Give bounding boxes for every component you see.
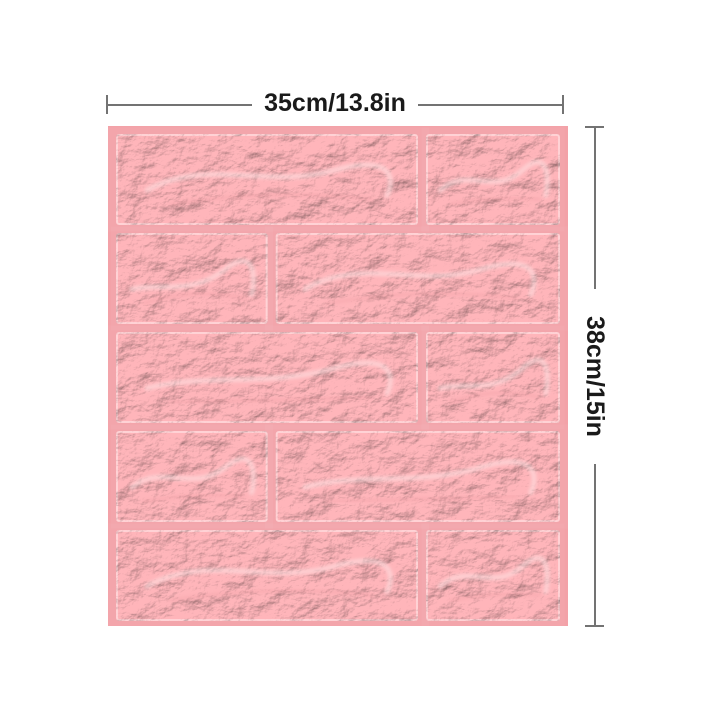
height-dimension-label-box: 38cm/15in xyxy=(585,289,604,464)
brick-panel xyxy=(108,126,568,626)
dimension-line-bottom-segment xyxy=(594,464,596,625)
brick xyxy=(117,135,417,224)
height-dimension: 38cm/15in xyxy=(585,126,604,627)
dimension-line-left-segment xyxy=(108,104,252,106)
product-image: 35cm/13.8in 38cm/15in xyxy=(0,0,720,720)
brick xyxy=(427,333,559,422)
brick-grid xyxy=(117,135,559,620)
dimension-line-right-segment xyxy=(418,104,562,106)
dimension-tick-bottom xyxy=(585,625,604,627)
dimension-tick-right xyxy=(562,95,564,114)
height-dimension-label: 38cm/15in xyxy=(582,316,607,437)
width-dimension: 35cm/13.8in xyxy=(106,95,564,114)
dimension-line-top-segment xyxy=(594,128,596,289)
brick xyxy=(277,234,559,323)
brick xyxy=(117,531,417,620)
width-dimension-label: 35cm/13.8in xyxy=(264,91,406,116)
brick xyxy=(117,234,267,323)
